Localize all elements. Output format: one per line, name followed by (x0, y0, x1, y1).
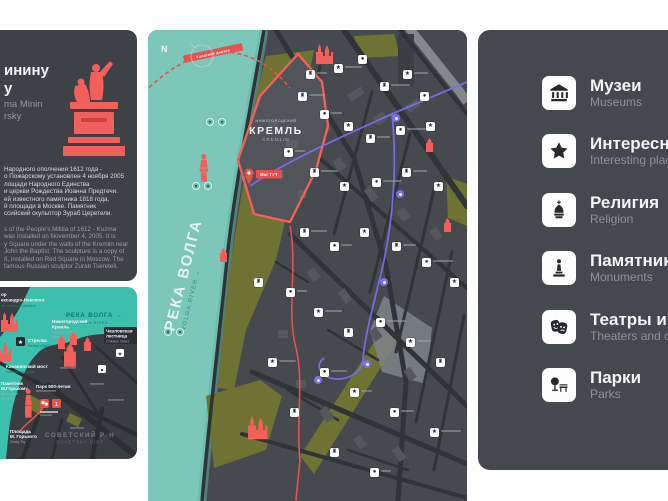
legend-item-theaters: Театры и кино Theaters and cinemas (542, 310, 668, 344)
legend-item-monuments: Памятники Monuments (542, 251, 668, 285)
legend-item-interesting: Интересные места Interesting places (542, 134, 668, 168)
legend-label-en: Parks (590, 387, 641, 401)
legend-label-ru: Интересные места (590, 135, 668, 153)
church-icon (548, 199, 570, 221)
text-line: 8, installed on Red Square in Moscow. Th… (4, 256, 133, 263)
park-bench-icon (548, 374, 570, 396)
church-tile (542, 193, 576, 227)
text-line: ссийский скульптор Зураб Церетели. (4, 210, 133, 217)
label-bar (40, 411, 58, 413)
card-title-en-2: rsky (4, 112, 21, 122)
text-line: о Пожарскому установлен 4 ноября 2005 (4, 173, 133, 180)
museum-tile (542, 76, 576, 110)
gorky-mon-ru2: М.Горькому (1, 386, 28, 391)
district-label-ru: СОВЕТСКИЙ Р-Н (45, 430, 115, 439)
kremlin-label-ru: КРЕМЛЬ (249, 125, 303, 137)
stairs-label-ru2: лестница (106, 334, 128, 339)
mini-map-canvas: РЕКА ВОЛГА → VOLGA RIVER ор ександро-Нев… (0, 287, 137, 459)
legend-label-ru: Театры и кино (590, 311, 668, 329)
legend-label-ru: Религия (590, 194, 659, 212)
gorky-sq-ru2: М. Горького (10, 434, 37, 439)
text-line: famous Russian sculptor Zurab Tsereteli. (4, 263, 133, 270)
bridge-label-ru: Канавинский мост (6, 363, 49, 369)
stop-number: 1 (55, 402, 58, 408)
gorky-sq-en: Gorky Sq (10, 440, 25, 444)
text-line: ей известного памятника 1818 года, (4, 196, 133, 203)
text-line: и церкви Рождества Иоанна Предтечи. (4, 188, 133, 195)
label-bar (36, 390, 56, 392)
text-line: лощади Народного Единства (4, 181, 133, 188)
district-label-en: SOVETSKY DIST (56, 440, 104, 445)
mini-river-label-ru: РЕКА ВОЛГА → (66, 312, 123, 319)
card-title-en: ma Minin (4, 100, 43, 110)
label-bar (40, 415, 52, 417)
star-icon (548, 140, 570, 162)
park800-label: Парк 800-летия (36, 384, 71, 389)
stairs-label-en: Chkalov Stairs (106, 339, 129, 343)
mini-kremlin-ru2: Кремль (52, 324, 69, 329)
legend-label-ru: Памятники (590, 252, 668, 270)
theater-tile (542, 310, 576, 344)
overview-mini-map: РЕКА ВОЛГА → VOLGA RIVER ор ександро-Нев… (0, 287, 137, 459)
compass-n: N (161, 44, 168, 54)
legend-label-en: Interesting places (590, 153, 668, 167)
kremlin-label-small: НИЖЕГОРОДСКИЙ (255, 119, 296, 123)
legend-label-en: Museums (590, 95, 642, 109)
legend-panel: Музеи Museums Интересные места Interesti… (478, 30, 668, 470)
gorky-mon-en2: M.Gorky (1, 396, 15, 400)
gorky-mon-en: Monument (1, 392, 18, 396)
tourist-map-poster: инину у ma Minin rsky Народного ополчени… (0, 0, 668, 501)
museum-icon (548, 82, 570, 104)
bridge-label-en: Kanavinsky bridge (6, 370, 35, 374)
park-tile (542, 368, 576, 402)
legend-label-en: Theaters and cinemas (590, 329, 668, 343)
legend-item-parks: Парки Parks (542, 368, 641, 402)
strelka-label-en: Strelka (Spit) (28, 344, 49, 348)
monument-tile (542, 251, 576, 285)
mini-kremlin-ru: Нижегородский (52, 318, 88, 324)
dot-icon: ● (100, 367, 103, 373)
legend-item-religion: Религия Religion (542, 193, 659, 227)
monument-shapes (63, 61, 125, 156)
you-are-here-text: ВЫ ТУТ (260, 172, 278, 177)
legend-label-en: Religion (590, 212, 659, 226)
card-title-ru: инину (4, 63, 49, 78)
monument-icon (548, 257, 570, 279)
monument-illustration-icon (54, 56, 134, 160)
info-card: инину у ma Minin rsky Народного ополчени… (0, 30, 137, 281)
description-en: s of the People's Militia of 1612 - Kuzm… (4, 226, 133, 270)
main-map-canvas: Канатная дорога N РЕКА ВОЛГА VOLGA RIVER… (148, 30, 467, 501)
description-ru: Народного ополчения 1612 года - о Пожарс… (4, 166, 133, 218)
text-line: was installed on November 4, 2005. It is (4, 233, 133, 240)
legend-label-ru: Музеи (590, 77, 642, 95)
legend-label-en: Monuments (590, 270, 668, 284)
legend-label-ru: Парки (590, 369, 641, 387)
star-icon: ★ (18, 339, 23, 346)
theater-masks-icon (548, 316, 570, 338)
strelka-label-ru: Стрелка (28, 338, 47, 343)
kremlin-label-en: KREMLIN (262, 137, 289, 142)
main-city-map: Канатная дорога N РЕКА ВОЛГА VOLGA RIVER… (148, 30, 467, 501)
star-icon: ★ (118, 352, 123, 358)
text-line: y Square under the walls of the Kremlin … (4, 241, 133, 248)
text-line: s of the People's Militia of 1612 - Kuzm… (4, 226, 133, 233)
card-title-ru-2: у (4, 81, 12, 96)
monument-plaque (81, 118, 107, 122)
cathedral-label-ru: ор (1, 292, 7, 297)
cathedral-label-ru2: ександро-Невского (1, 298, 45, 303)
legend-item-museums: Музеи Museums (542, 76, 642, 110)
cathedral-label-en: der Nevsky Cathedral (1, 304, 36, 308)
star-tile (542, 134, 576, 168)
text-line: John the Baptist. The sculpture is a cop… (4, 248, 133, 255)
